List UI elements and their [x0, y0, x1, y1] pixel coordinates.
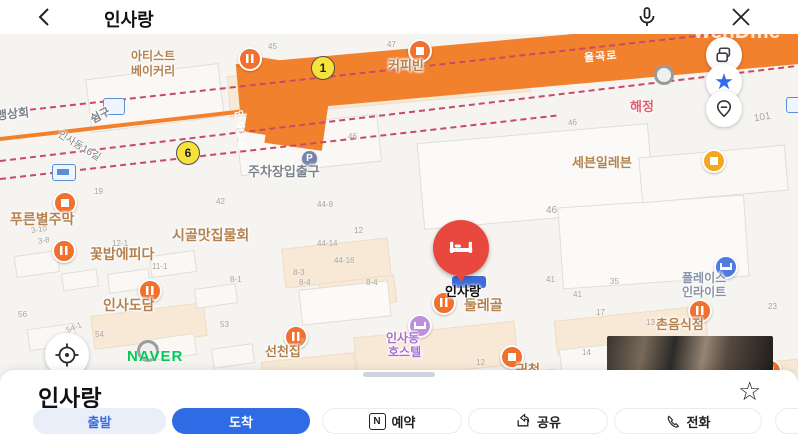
building-number: 11-1 [152, 262, 167, 271]
poi-label-seoncheonjip[interactable]: 선천집 [265, 341, 301, 360]
building-number: 12 [476, 358, 485, 367]
building-number: 41 [546, 275, 555, 284]
poi-label-maeng-sanghoe[interactable]: 맹상회 [0, 103, 30, 123]
kkotbap-poi-icon[interactable] [52, 239, 76, 263]
naver-logo: NAVER [127, 348, 183, 365]
building-number: 56 [18, 310, 27, 319]
building-number: 8-1 [230, 275, 242, 284]
watermark: wehDme [694, 20, 780, 44]
building-number: 35 [610, 277, 619, 286]
building-number: 47 [387, 40, 396, 49]
subway-logo-icon [654, 65, 674, 85]
call-label: 전화 [687, 412, 711, 431]
selected-place-pin[interactable] [433, 220, 489, 276]
building-number: 46 [546, 205, 557, 216]
search-title[interactable]: 인사랑 [104, 6, 154, 32]
building-number: 41 [573, 290, 582, 299]
building-number: 8-4 [366, 278, 378, 287]
building-number: 7 [300, 338, 304, 347]
more-button-partial[interactable] [775, 408, 798, 434]
depart-label: 출발 [88, 412, 112, 431]
back-button[interactable] [32, 5, 58, 29]
building-number: 8-3 [293, 268, 305, 277]
share-label: 공유 [537, 412, 561, 431]
building-number: 53 [220, 320, 229, 329]
building-number: 44-8 [317, 200, 333, 209]
depart-button[interactable]: 출발 [33, 408, 166, 434]
location-pin-button[interactable] [706, 91, 742, 127]
naver-n-icon: N [369, 413, 386, 430]
building-number: 12 [354, 226, 363, 235]
poi-label-haejeong[interactable]: 해정 [630, 96, 654, 115]
building-number: 12-1 [112, 239, 128, 248]
share-button[interactable]: 공유 [468, 408, 608, 434]
arrive-label: 도착 [229, 412, 253, 431]
bed-icon [446, 233, 476, 263]
building-number: 14 [582, 348, 591, 357]
poi-label-insadodam[interactable]: 인사도담 [103, 295, 155, 315]
building-number: 45 [268, 42, 277, 51]
pin-outline-icon [715, 99, 733, 119]
call-button[interactable]: 전화 [614, 408, 762, 434]
map-building [194, 283, 238, 309]
target-icon [54, 342, 80, 368]
map-building [298, 280, 391, 325]
poi-label-artist-bakery-line2[interactable]: 베이커리 [131, 62, 175, 79]
pin-place-label[interactable]: 인사랑 [423, 281, 503, 300]
building-number: 17 [596, 308, 605, 317]
reserve-label: 예약 [392, 412, 416, 431]
poi-label-place-inlight-line2[interactable]: 인라이트 [682, 283, 726, 300]
bookmark-star-icon: ★ [714, 71, 734, 93]
place-bottom-sheet: 인사랑 ☆ 출발 도착 N 예약 공유 전화 [0, 370, 798, 438]
subway-exit-1-marker[interactable]: 1 [311, 56, 335, 80]
poi-label-hostel-line2[interactable]: 호스텔 [388, 343, 421, 360]
map-building [61, 269, 99, 292]
building-number: 46 [567, 117, 577, 127]
streetview-photo-thumbnail[interactable] [607, 336, 773, 371]
road-label-yulgokro: 율곡로 [583, 47, 618, 66]
bakery-poi-icon[interactable] [238, 47, 262, 71]
poi-label-seven-eleven[interactable]: 세븐일레븐 [572, 152, 632, 171]
building-number: 13 [646, 318, 655, 327]
reserve-button[interactable]: N 예약 [322, 408, 462, 434]
building-number: 54 [95, 330, 104, 339]
building-number: 19 [94, 187, 103, 196]
map-building [211, 343, 255, 369]
building-number: 23 [768, 302, 777, 311]
poi-label-chon-eumsikjeom[interactable]: 촌음식점 [656, 314, 704, 333]
sheet-drag-handle[interactable] [363, 372, 435, 377]
seven-eleven-poi-icon[interactable] [702, 149, 726, 173]
poi-label-coffee-bean[interactable]: 커피빈 [388, 55, 424, 74]
building-number: 44-16 [334, 256, 354, 265]
poi-label-sigol-matjip[interactable]: 시골맛집물회 [172, 225, 249, 245]
share-icon [515, 413, 531, 429]
phone-icon [666, 414, 681, 429]
building-number: 44-14 [317, 239, 337, 248]
building-number: 101 [753, 111, 771, 125]
favorite-star-button[interactable]: ☆ [738, 378, 761, 404]
building-number: 3-8 [37, 235, 50, 246]
bus-stop-icon [52, 164, 76, 181]
arrive-button[interactable]: 도착 [172, 408, 310, 434]
poi-label-parking-entrance[interactable]: 주차장입출구 [248, 161, 320, 180]
building-number: 3-10 [30, 224, 47, 235]
top-bar: 인사랑 [0, 0, 798, 34]
roadview-icon [715, 46, 733, 64]
building-number: 42 [216, 197, 225, 206]
building-number: 46 [348, 132, 357, 141]
subway-exit-6-marker[interactable]: 6 [176, 141, 200, 165]
transit-icon-clipped [786, 97, 798, 113]
building-number: 8-4 [299, 278, 311, 287]
voice-search-button[interactable] [634, 5, 660, 29]
